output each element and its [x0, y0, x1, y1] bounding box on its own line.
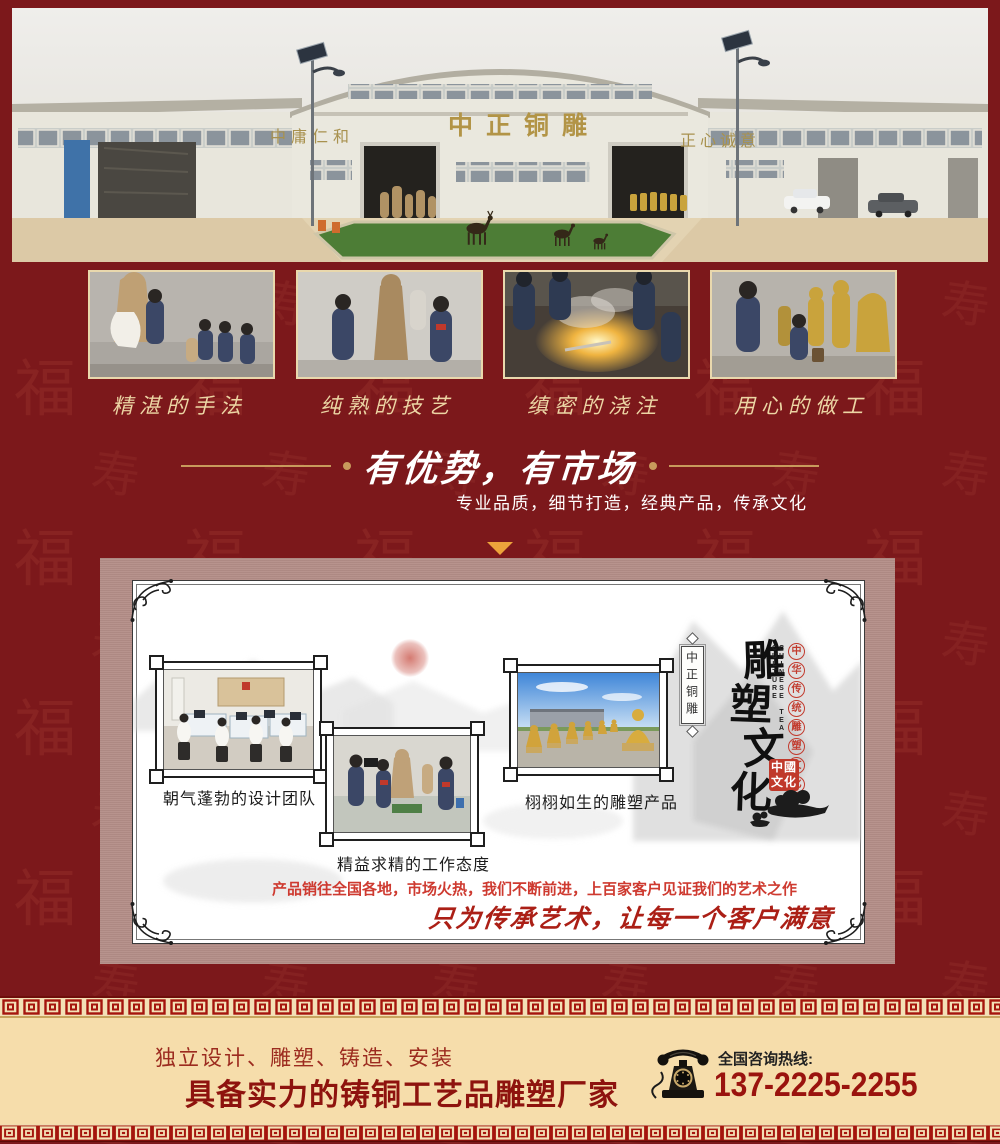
culture-card: 朝气蓬勃的设计团队	[132, 580, 865, 944]
process-photo-casting	[503, 270, 690, 379]
hui-meander-border-top	[0, 996, 1000, 1018]
gold-dot-right	[649, 462, 657, 470]
corner-flourish-icon	[129, 577, 175, 623]
building-sign-center: 中正铜雕	[448, 111, 600, 140]
gold-divider-left	[181, 465, 331, 467]
factory-panorama-photo: 中庸仁和 中正铜雕 正心诚意	[12, 8, 988, 262]
process-photo-finishing	[710, 270, 897, 379]
corner-flourish-icon	[129, 901, 175, 947]
scroll-knot	[686, 632, 699, 645]
photo-design-team	[163, 669, 314, 770]
process-caption-4: 用心的做工	[708, 390, 895, 420]
factory-building	[530, 711, 604, 727]
hui-meander-border-bottom	[0, 1124, 1000, 1142]
down-triangle-icon	[487, 542, 513, 555]
red-sun-motif	[391, 639, 429, 677]
footer-services-line: 独立设计、雕塑、铸造、安装	[155, 1042, 454, 1072]
corner-flourish-icon	[822, 901, 868, 947]
corner-flourish-icon	[822, 577, 868, 623]
orange-chair	[318, 220, 326, 231]
footer-headline: 具备实力的铸铜工艺品雕塑厂家	[185, 1070, 619, 1114]
hotline-phone-number: 137-2225-2255	[714, 1066, 918, 1105]
advantage-subtitle: 专业品质，细节打造，经典产品，传承文化	[456, 489, 808, 514]
photo-work-attitude	[333, 735, 471, 833]
process-caption-3: 缜密的浇注	[501, 390, 688, 420]
advantage-title: 有优势，有市场	[362, 440, 639, 492]
marketing-line: 产品销往全国各地，市场火热，我们不断前进，上百家客户见证我们的艺术之作	[272, 878, 797, 899]
gold-divider-right	[669, 465, 819, 467]
factory-panorama-illustration: 中庸仁和 中正铜雕 正心诚意	[12, 8, 988, 262]
gallery-caption-work-attitude: 精益求精的工作态度	[337, 851, 490, 875]
process-caption-1: 精湛的手法	[86, 390, 273, 420]
process-photo-modeling	[296, 270, 483, 379]
brand-slogan-calligraphy: 只为传承艺术，让每一个客户满意	[427, 899, 836, 935]
gallery-frame-work-attitude	[325, 727, 479, 841]
blue-bucket	[456, 798, 464, 808]
auspicious-cloud-icon	[745, 787, 831, 827]
process-caption-2: 纯熟的技艺	[294, 390, 481, 420]
gallery-frame-products	[509, 664, 668, 776]
footer-banner: 独立设计、雕塑、铸造、安装 具备实力的铸铜工艺品雕塑厂家 全国咨询热线: 137…	[0, 1018, 1000, 1124]
photo-products	[517, 672, 660, 768]
vintage-telephone-icon	[646, 1044, 710, 1102]
bucket	[812, 348, 824, 362]
advantage-header: 有优势，有市场	[0, 440, 1000, 492]
gallery-caption-products: 栩栩如生的雕塑产品	[525, 789, 678, 813]
gallery-caption-design-team: 朝气蓬勃的设计团队	[163, 785, 316, 809]
video-camera	[364, 758, 378, 767]
scroll-knot	[686, 725, 699, 738]
building-sign-right: 正心诚意	[680, 131, 760, 150]
page: 福 寿	[0, 0, 1000, 1144]
orange-chair	[332, 222, 340, 233]
scroll-text: 中正铜雕	[684, 651, 701, 719]
gold-dot-left	[343, 462, 351, 470]
process-photo-sculpting	[88, 270, 275, 379]
seal-script-scroll: 中正铜雕	[681, 631, 703, 739]
gallery-frame-design-team	[155, 661, 322, 778]
